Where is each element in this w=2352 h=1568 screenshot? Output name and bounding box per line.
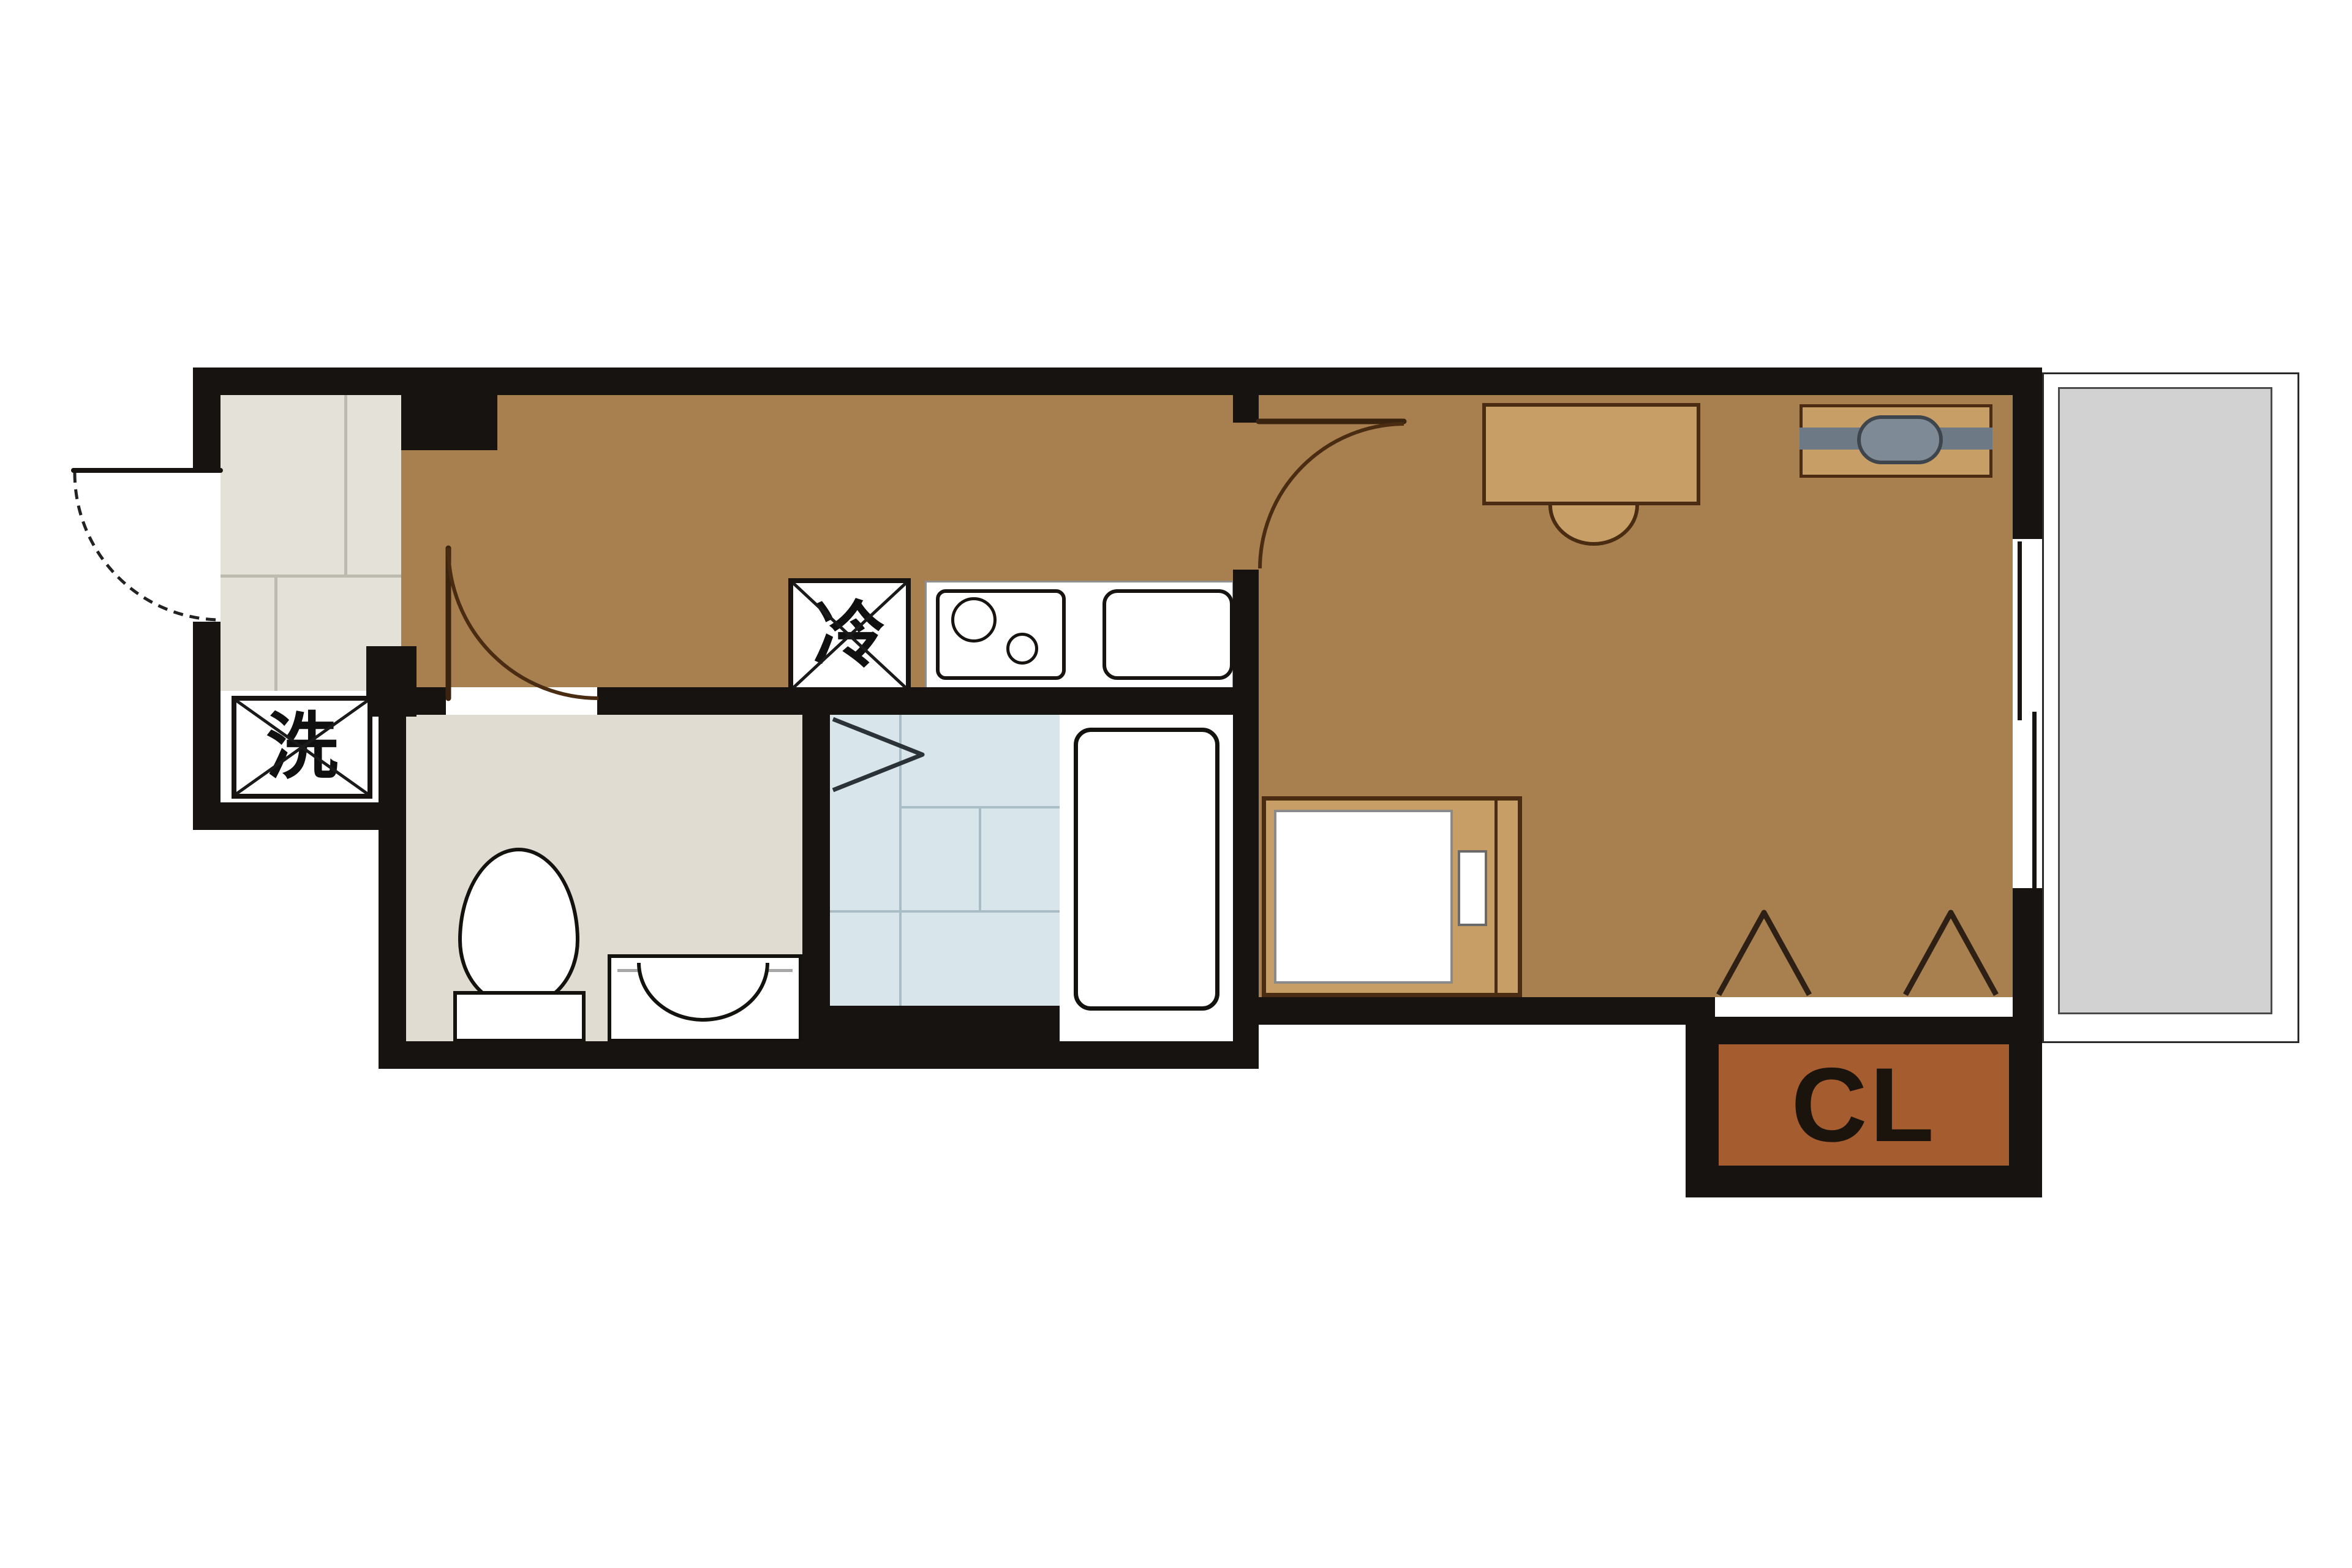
closet-door-chevron-icon	[1719, 913, 1809, 995]
washroom-door-swing-icon	[448, 548, 598, 698]
bath-folding-door-icon	[833, 719, 922, 790]
door-swing-overlay	[0, 0, 2352, 1568]
closet-door-chevron-icon	[1905, 913, 1996, 995]
refrigerator-x-mark	[793, 583, 906, 688]
interior-door-swing-icon	[1260, 424, 1404, 568]
front-door-swing-icon	[75, 473, 219, 620]
floor-plan: 冷 洗 CL	[0, 0, 2352, 1568]
washer-x-mark	[236, 701, 367, 794]
